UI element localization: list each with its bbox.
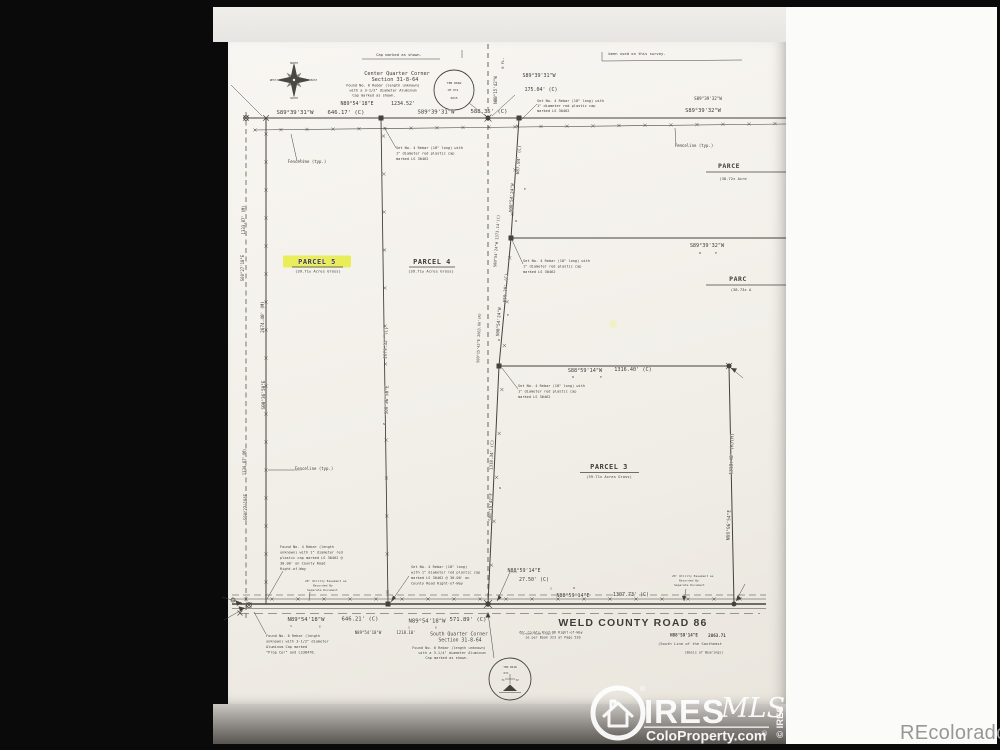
plat-label: PARC (729, 275, 747, 283)
plat-label: (38.73± A (731, 287, 752, 292)
plat-label: with a 3-1/2" diameter Aluminum (349, 89, 416, 93)
fence-x-mark (382, 134, 385, 137)
fence-x-mark (492, 520, 495, 523)
plat-label: Section 31-8-64 (438, 638, 481, 644)
plat-label: N (383, 422, 385, 426)
plat-label: S00°15'42"E 2663.66'(R) (476, 313, 482, 363)
plat-label: S (290, 624, 292, 628)
plat-label: PARCE (718, 162, 740, 170)
highlighter-smudge (609, 320, 617, 328)
fence-x-mark (503, 344, 506, 347)
plat-label: 588.35' (C) (470, 109, 507, 115)
plat-label: marked LS 30462 (523, 270, 555, 274)
plat-label: County Road Right-of-Way (411, 582, 464, 586)
plat-label: S00°27'18"E (240, 254, 245, 281)
fence-x-mark (721, 123, 724, 126)
plat-label: PARCEL 5 (298, 258, 336, 266)
plat-label: 31 (501, 678, 505, 682)
fence-x-mark (617, 124, 620, 127)
plat-label: N00°15'42"W (493, 76, 498, 104)
fence-x-mark (695, 123, 698, 126)
plat-label: WEST (270, 78, 277, 82)
plat-label: 175.04' (C) (524, 87, 557, 93)
plat-label: S (408, 626, 410, 630)
fence-x-mark (565, 125, 568, 128)
plat-label: 20' Utility Easement as (305, 579, 347, 583)
plat-label: E (715, 251, 717, 255)
ires-logo-ring-icon (593, 688, 643, 738)
recolorado-watermark: REcolorado (900, 722, 1000, 745)
plat-label: E (600, 375, 602, 379)
copyright-ires-text: © IRES (775, 706, 786, 738)
plat-label: Right-of-Way (280, 567, 307, 571)
plat-label: S89°39'31"W (417, 110, 455, 116)
plat-label: 1218.10' (396, 630, 415, 635)
plat-label: S (550, 587, 552, 591)
plat-label: 687.84' (C) (515, 145, 523, 174)
plat-label: S88°59'14"W (568, 368, 603, 374)
plat-label: S89°39'32"W (685, 108, 721, 114)
fence-x-mark (385, 438, 388, 441)
plat-label: plastic cap marked LS 30462 @ (280, 556, 344, 560)
plat-label: Set No. 4 Rebar (18" long) with (518, 384, 585, 388)
plat-label: N (499, 486, 501, 490)
ires-wordmark: IRES (644, 693, 725, 730)
plat-label: N88°59'14"E (507, 568, 540, 574)
fence-x-mark (498, 432, 501, 435)
plat-label: marked LS 30462 (537, 109, 569, 113)
plat-label: marked LS 30462 (518, 395, 550, 399)
plat-label: Found No. 6 Rebar (length (266, 634, 320, 638)
plat-label: been used on this survey. (608, 51, 665, 56)
plat-linework (232, 44, 786, 618)
corner-monuments (231, 115, 736, 616)
plat-label: (38.72± Acre (719, 176, 747, 181)
plat-label: (39.71± Acres Gross) (586, 474, 632, 479)
plat-label: S00°54'24"W 1373.14'(C) (492, 214, 501, 267)
plat-label: Fenceline (typ.) (288, 159, 327, 164)
plat-label: 2674.40' (M) (260, 301, 266, 333)
plat-label: unknown) with 1" diameter red (280, 551, 343, 555)
plat-label: W (573, 586, 575, 590)
plat-label: with 1" diameter red plastic cap (411, 571, 480, 575)
plat-label: SOUTH (290, 96, 298, 100)
plat-label: Cap marked as shown. (376, 52, 422, 57)
plat-label: S00°27'18"E (243, 493, 248, 520)
photo-frame: Cap marked as shown.been used on this su… (0, 0, 1000, 750)
plat-label: 6 FL. (500, 57, 505, 68)
plat-label: Recorded By (313, 584, 333, 588)
fence-x-mark (382, 172, 385, 175)
plat-label: E (319, 625, 321, 629)
fence-x-mark (773, 122, 776, 125)
registered-mark: ® (761, 730, 768, 738)
fence-x-mark (495, 476, 498, 479)
compass-rose-icon (276, 62, 312, 98)
fence-x-mark (500, 388, 503, 391)
plat-label: T8N R64W (503, 665, 517, 669)
plat-label: 2679.32' (C) (382, 327, 389, 359)
fence-x-mark (669, 123, 672, 126)
plat-label: Separate Document (307, 588, 338, 592)
coloproperty-text: ColoProperty.com (646, 728, 766, 744)
plat-label: marked LS 30462 (396, 157, 428, 161)
plat-label: S89°39'32"W (694, 96, 722, 101)
plat-label: E (507, 313, 509, 317)
plat-label: 646.17' (C) (327, 110, 364, 116)
fence-x-mark (747, 122, 750, 125)
plat-label: E (435, 626, 437, 630)
plat-label: 1" diameter red plastic cap (518, 390, 576, 394)
plat-label: N89°54'18"E (340, 101, 373, 107)
plat-label: (Gravel Road (Typ)) (521, 632, 553, 636)
plat-label: S00°36'50"E (261, 380, 267, 409)
plat-label: S00°15'42"E (488, 493, 494, 521)
plat-label: with a 3-1/4" diameter Aluminum (418, 651, 485, 655)
plat-label: 646.21' (C) (341, 617, 378, 623)
plat-label: Fenceline (typ.) (295, 466, 334, 471)
plat-label: (South Line of the Southeast (658, 641, 722, 646)
plat-label: 1316.40' (C) (614, 367, 651, 373)
plat-label: 650.30' (C) (502, 273, 510, 302)
plat-label: Section 31-8-64 (372, 77, 419, 83)
plat-label: N89°54'18"W (287, 617, 325, 623)
plat-label: S00°36'50"E (383, 385, 390, 415)
plat-label: N88°59'14"E (670, 633, 698, 638)
plat-label: (39.71± Acres Gross) (295, 269, 341, 274)
plat-label: 32 (515, 678, 519, 682)
plat-label: Set No. 4 Rebar (18" long) with (537, 99, 604, 103)
plat-svg: Cap marked as shown.been used on this su… (0, 0, 1000, 750)
plat-label: South Quarter Corner (430, 632, 488, 638)
plat-label: PARCEL 3 (590, 463, 628, 471)
plat-label: Recorded By (679, 579, 699, 583)
plat-label: E (524, 187, 526, 191)
plat-label: (Basis of Bearings) (685, 651, 724, 655)
fence-x-mark (643, 124, 646, 127)
plat-label: 1318.34' (C) (488, 440, 494, 470)
plat-label: Cap marked as shown. (352, 94, 395, 98)
plat-label: 20' Utility Easement as (672, 574, 714, 578)
plat-label: 1234.52' (391, 101, 415, 107)
plat-label: EAST (311, 78, 318, 82)
plat-label: Aluminum Cap marked (266, 645, 307, 649)
plat-label: 1318.48' (R)(M) (728, 433, 735, 475)
plat-label: N88°59'14"E (556, 593, 589, 599)
plat-label: Found No. 4 Rebar (length (280, 545, 334, 549)
plat-label: T8N R64W (447, 81, 462, 85)
plat-label: N89°54'18"W (355, 630, 382, 635)
plat-label: 2015 (450, 96, 457, 100)
plat-label: 30.00' on County Road (280, 562, 325, 566)
plat-label: N (699, 251, 701, 255)
fence-x-mark (383, 248, 386, 251)
plat-label: WELD COUNTY ROAD 86 (558, 617, 707, 629)
plat-label: S89°39'32"W (690, 243, 725, 249)
plat-label: 1" diameter red plastic cap (523, 265, 581, 269)
plat-label: S89°39'31"W (276, 110, 314, 116)
plat-label: marked LS 30462 @ 30.00' on (411, 576, 469, 580)
registered-mark: ® (639, 685, 646, 693)
plat-label: 1" diameter red plastic cap (396, 152, 454, 156)
plat-label: Cap marked as shown. (425, 656, 468, 660)
plat-label: N89°54'18"W (408, 619, 446, 625)
plat-label: 1307.73' (C) (613, 592, 649, 598)
plat-label: 2863.71 (708, 633, 726, 638)
ires-mls-logo: ® IRES MLS ColoProperty.com ® © IRES (588, 676, 793, 746)
plat-label: 27.50' (C) (519, 577, 549, 583)
plat-label: S89°39'31"W (522, 73, 556, 79)
plat-label: N (515, 219, 517, 223)
plat-label: (39.71± Acres Gross) (408, 269, 454, 274)
plat-label: 1" diameter red plastic cap (537, 104, 595, 108)
plat-label: Found No. 6 Rebar (length unknown) (412, 646, 486, 650)
plat-label: PARCEL 4 (413, 258, 451, 266)
plat-label: Set No. 4 Rebar (18" long) with (523, 259, 590, 263)
house-icon (604, 701, 632, 726)
plat-label: N (498, 338, 500, 342)
plat-label: 1333.87' (M) (241, 206, 246, 235)
plat-label: "Prop Cor" and LS38478. (266, 651, 316, 655)
plat-label: CM 931 (448, 88, 459, 92)
plat-label: as per Book 323 at Page 520 (525, 636, 580, 640)
plat-label: Found No. 6 Rebar (length unknown) (346, 84, 420, 88)
plat-label: Set No. 4 Rebar (18" long) with (396, 146, 463, 150)
plat-label: Separate Document (674, 583, 705, 587)
plat-label: 631 (503, 671, 508, 675)
plat-label: Set No. 4 Rebar (18" long) (411, 565, 467, 569)
fence-x-mark (591, 124, 594, 127)
plat-label: N00°06'54"E (725, 509, 732, 540)
plat-label: NORTH (290, 61, 298, 65)
plat-label: N (572, 375, 574, 379)
plat-label: unknown) with 3-1/2" diameter (266, 640, 330, 644)
plat-label: 1330.87'(M) (242, 449, 247, 476)
plat-label: S00°54'24"W (508, 183, 516, 213)
plat-label: Fenceline (typ.) (675, 143, 714, 148)
plat-label: 571.89' (C) (449, 617, 486, 623)
fence-x-mark (383, 210, 386, 213)
